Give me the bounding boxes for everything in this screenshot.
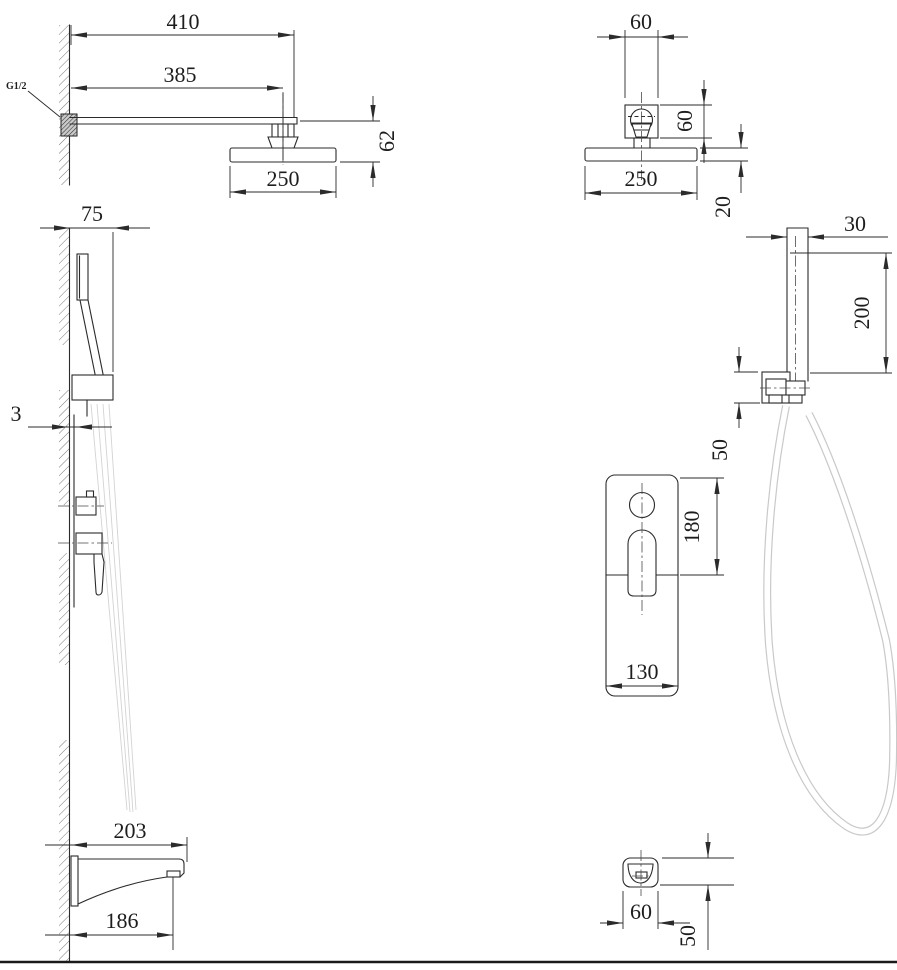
spout-underside-curve: [78, 877, 167, 904]
arrow: [883, 253, 888, 269]
dim-label: 75: [81, 201, 103, 226]
head-neck: [634, 138, 650, 148]
lever-body-side: [76, 533, 102, 554]
arrow: [736, 356, 741, 372]
wall-hatch: [59, 740, 70, 962]
shower-head-front: [585, 148, 697, 161]
dim-label: 60: [672, 110, 697, 132]
holder-inner-block: [766, 379, 786, 395]
arrow: [71, 932, 87, 937]
arrow: [701, 89, 706, 105]
arrow: [609, 34, 625, 39]
dim-spout-height: 50: [660, 833, 734, 950]
arrow: [714, 559, 719, 575]
spout-aerator: [167, 871, 180, 877]
arrow: [370, 105, 375, 121]
diverter-stem: [87, 491, 94, 497]
wall-hatch: [59, 25, 70, 185]
arrow: [658, 34, 674, 39]
holder-side: [72, 375, 113, 400]
technical-drawing-sheet: G1/2 410 385 62 250: [0, 0, 897, 970]
wall-hatch: [59, 553, 70, 665]
arrow: [736, 403, 741, 419]
dim-label: 3: [11, 401, 22, 426]
arrow: [705, 885, 710, 901]
dim-holder-depth: 75: [40, 201, 150, 372]
hose-nipple: [789, 395, 802, 403]
arrow: [267, 85, 283, 90]
arrow: [278, 32, 294, 37]
dim-lines: [40, 228, 150, 372]
arrow: [71, 842, 87, 847]
dim-label: 250: [267, 166, 300, 191]
arrow: [705, 842, 710, 858]
dim-lines: [300, 96, 380, 187]
arrow: [71, 32, 87, 37]
view-hand-shower-side: 75 3: [11, 201, 151, 962]
dim-label: 410: [167, 9, 200, 34]
dim-lines: [790, 253, 892, 373]
dim-label: 186: [106, 908, 139, 933]
dim-label: 30: [844, 211, 866, 236]
view-overhead-shower-side: G1/2 410 385 62 250: [6, 9, 399, 198]
arrow: [71, 85, 87, 90]
arrow: [607, 920, 623, 925]
arrow: [808, 234, 824, 239]
dim-label: 62: [374, 130, 399, 152]
arrow: [171, 842, 187, 847]
shower-system-dimension-drawing: G1/2 410 385 62 250: [0, 0, 897, 970]
arrow: [714, 478, 719, 494]
holder-foot: [769, 395, 782, 403]
dim-label: 180: [679, 511, 704, 544]
dim-holder-height: 50: [707, 347, 760, 461]
arrow: [883, 357, 888, 373]
thread-size-label: G1/2: [6, 81, 27, 92]
arrow: [701, 138, 706, 154]
dim-label: 250: [625, 166, 658, 191]
view-overhead-shower-front: 60 60 250 20: [585, 9, 748, 218]
dim-lines: [597, 30, 688, 98]
hand-shower-head-side: [77, 254, 88, 300]
thread-leader-line: [28, 91, 60, 117]
outlet-bar: [787, 228, 808, 381]
dim-label: 200: [849, 297, 874, 330]
hand-shower-hose-outline: [767, 406, 893, 832]
arrow: [320, 189, 336, 194]
arrow: [585, 190, 601, 195]
shower-arm: [70, 118, 297, 125]
dim-label: 385: [164, 62, 197, 87]
arrow: [370, 162, 375, 178]
dim-arm-length: 385: [71, 62, 283, 160]
arrow: [230, 189, 246, 194]
arrow: [658, 920, 674, 925]
dim-bar-width: 30: [746, 211, 888, 240]
arrow: [771, 234, 787, 239]
hose-side-lines: [91, 404, 136, 812]
view-outlet-bar-front: 30 200 50: [707, 211, 893, 832]
dim-label: 60: [630, 899, 652, 924]
dim-bracket-width: 60: [597, 9, 688, 98]
arrow: [157, 932, 173, 937]
arrow: [113, 225, 129, 230]
dim-mixer-plate-height: 180: [679, 478, 724, 575]
arrow: [76, 424, 92, 429]
lever-blade-side: [94, 554, 104, 595]
view-spout-front: 60 50: [600, 833, 734, 950]
arrow: [738, 132, 743, 148]
dim-head-width-front: 250: [585, 166, 697, 200]
dim-label: 203: [114, 818, 147, 843]
dim-head-width-side: 250: [230, 166, 336, 198]
arrow: [738, 161, 743, 177]
dim-head-drop: 62: [300, 96, 399, 187]
view-mixer-trim-front: 180 130: [606, 475, 724, 696]
hand-shower-handle: [80, 300, 103, 374]
spout-wall-flange: [71, 856, 78, 906]
dim-label: 20: [710, 196, 735, 218]
dim-spout-width: 60: [600, 891, 690, 929]
wall-hatch: [59, 228, 70, 345]
arrow: [681, 190, 697, 195]
wall-hatch: [59, 390, 70, 505]
dim-label: 130: [626, 659, 659, 684]
dim-label: 50: [707, 439, 732, 461]
dim-label: 60: [630, 9, 652, 34]
dim-label: 50: [675, 925, 700, 947]
dim-bar-length: 200: [790, 253, 892, 373]
